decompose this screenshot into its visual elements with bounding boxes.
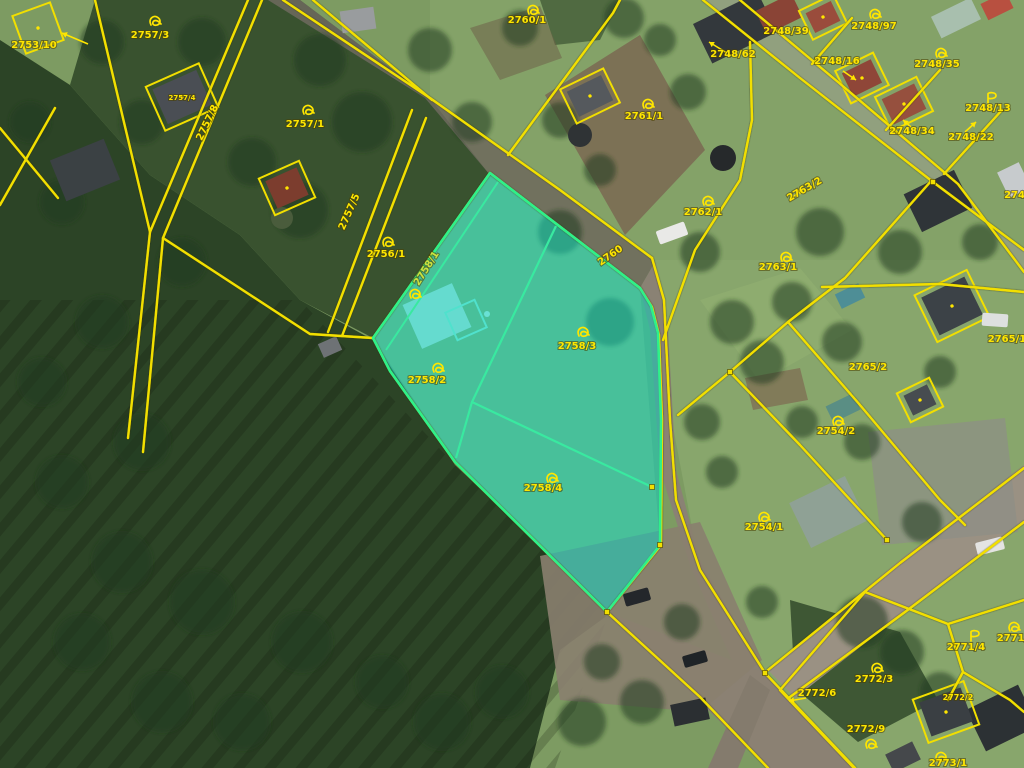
boundary-vertex-marker bbox=[763, 671, 768, 676]
boundary-vertex-marker bbox=[728, 370, 733, 375]
tree-blob bbox=[170, 570, 234, 634]
parcel-label: 2756/1 bbox=[367, 249, 405, 260]
parcel-label: 2773/1 bbox=[929, 758, 967, 768]
parcel-label: 2748/16 bbox=[814, 56, 859, 67]
parcel-label: 2757/3 bbox=[131, 30, 169, 41]
tree-blob bbox=[924, 356, 956, 388]
boundary-vertex-marker bbox=[605, 610, 610, 615]
ground-patch bbox=[868, 418, 1018, 545]
tree-blob bbox=[680, 232, 720, 272]
tree-blob bbox=[10, 102, 50, 142]
parcel-label: 2758/4 bbox=[524, 483, 562, 494]
round-structure bbox=[271, 207, 293, 229]
tree-blob bbox=[620, 680, 664, 724]
boundary-vertex-marker bbox=[658, 543, 663, 548]
tree-blob bbox=[796, 208, 844, 256]
parcel-label: 2748/22 bbox=[948, 132, 993, 143]
tree-blob bbox=[772, 282, 812, 322]
parcel-label: 2754/1 bbox=[745, 522, 783, 533]
parcel-label: 2765/2 bbox=[849, 362, 887, 373]
parcel-label: 2748/13 bbox=[965, 103, 1010, 114]
tree-blob bbox=[786, 406, 818, 438]
tree-blob bbox=[228, 138, 276, 186]
parcel-label: 2772/9 bbox=[847, 724, 885, 735]
parcel-label: 2765/1 bbox=[988, 334, 1024, 345]
parcel-label: 2753/10 bbox=[11, 40, 56, 51]
tree-blob bbox=[54, 614, 110, 670]
round-structure bbox=[710, 145, 736, 171]
tree-blob bbox=[684, 404, 720, 440]
parcel-label: 2748/62 bbox=[710, 49, 755, 60]
boundary-vertex-marker bbox=[650, 485, 655, 490]
tree-blob bbox=[476, 666, 528, 718]
tree-blob bbox=[880, 630, 924, 674]
parcel-label: 2748/97 bbox=[851, 21, 896, 32]
tree-blob bbox=[272, 612, 332, 672]
tree-blob bbox=[36, 456, 88, 508]
tree-blob bbox=[836, 596, 888, 648]
tree-blob bbox=[558, 698, 606, 746]
tree-blob bbox=[664, 604, 700, 640]
parcel-label: 2748/35 bbox=[914, 59, 959, 70]
tree-blob bbox=[740, 340, 784, 384]
tree-blob bbox=[746, 586, 778, 618]
tree-blob bbox=[214, 694, 270, 750]
parcel-label: 2771/4 bbox=[947, 642, 985, 653]
tree-blob bbox=[408, 28, 452, 72]
round-structure bbox=[568, 123, 592, 147]
tree-blob bbox=[76, 296, 128, 348]
parcel-label: 2758/2 bbox=[408, 375, 446, 386]
tree-blob bbox=[706, 456, 738, 488]
parcel-label: 2748/39 bbox=[763, 26, 808, 37]
parcel-label: 2760/1 bbox=[508, 15, 546, 26]
tree-blob bbox=[452, 102, 492, 142]
tree-blob bbox=[18, 358, 66, 406]
tree-blob bbox=[644, 24, 676, 56]
car bbox=[982, 313, 1009, 328]
cadastral-map-canvas[interactable]: 2753/102757/32757/42757/12757/82757/5275… bbox=[0, 0, 1024, 768]
parcel-label: 2758/3 bbox=[558, 341, 596, 352]
tree-blob bbox=[294, 34, 346, 86]
parcel-label: 2772/6 bbox=[798, 688, 836, 699]
building bbox=[340, 7, 377, 34]
tree-blob bbox=[670, 74, 706, 110]
parcel-label: 2757/1 bbox=[286, 119, 324, 130]
tree-blob bbox=[332, 92, 392, 152]
tree-blob bbox=[710, 300, 754, 344]
boundary-vertex-marker bbox=[931, 180, 936, 185]
tree-blob bbox=[114, 414, 170, 470]
boundary-vertex-marker bbox=[885, 538, 890, 543]
tree-blob bbox=[178, 18, 226, 66]
tree-blob bbox=[132, 672, 192, 732]
parcel-label: 2772/3 bbox=[855, 674, 893, 685]
parcel-label: 2761/1 bbox=[625, 111, 663, 122]
parcel-label: 2771/1 bbox=[997, 633, 1024, 644]
tree-blob bbox=[356, 656, 408, 708]
parcel-label: 2757/4 bbox=[169, 94, 196, 102]
tree-blob bbox=[92, 532, 152, 592]
parcel-label: 2754/2 bbox=[817, 426, 855, 437]
parcel-label: 2763/1 bbox=[759, 262, 797, 273]
parcel-label: 2749 bbox=[1004, 190, 1024, 201]
tree-blob bbox=[414, 694, 470, 750]
parcel-label: 2772/2 bbox=[943, 693, 974, 702]
parcel-label: 2762/1 bbox=[684, 207, 722, 218]
cadastral-map-svg: 2753/102757/32757/42757/12757/82757/5275… bbox=[0, 0, 1024, 768]
tree-blob bbox=[878, 230, 922, 274]
tree-blob bbox=[822, 322, 862, 362]
tree-blob bbox=[584, 644, 620, 680]
tree-blob bbox=[584, 154, 616, 186]
parcel-label: 2748/34 bbox=[889, 126, 934, 137]
